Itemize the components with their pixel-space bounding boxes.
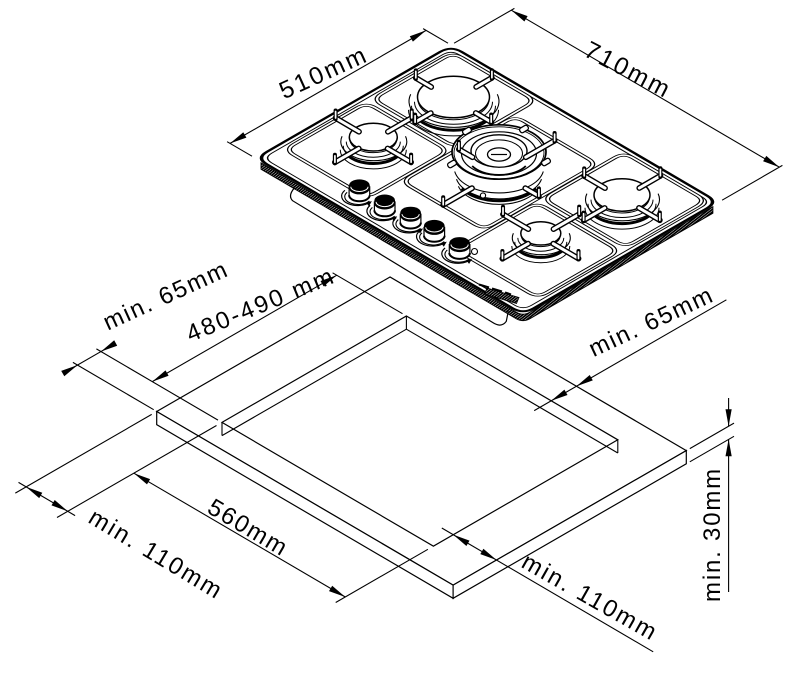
svg-text:min. 30mm: min. 30mm <box>699 467 726 602</box>
